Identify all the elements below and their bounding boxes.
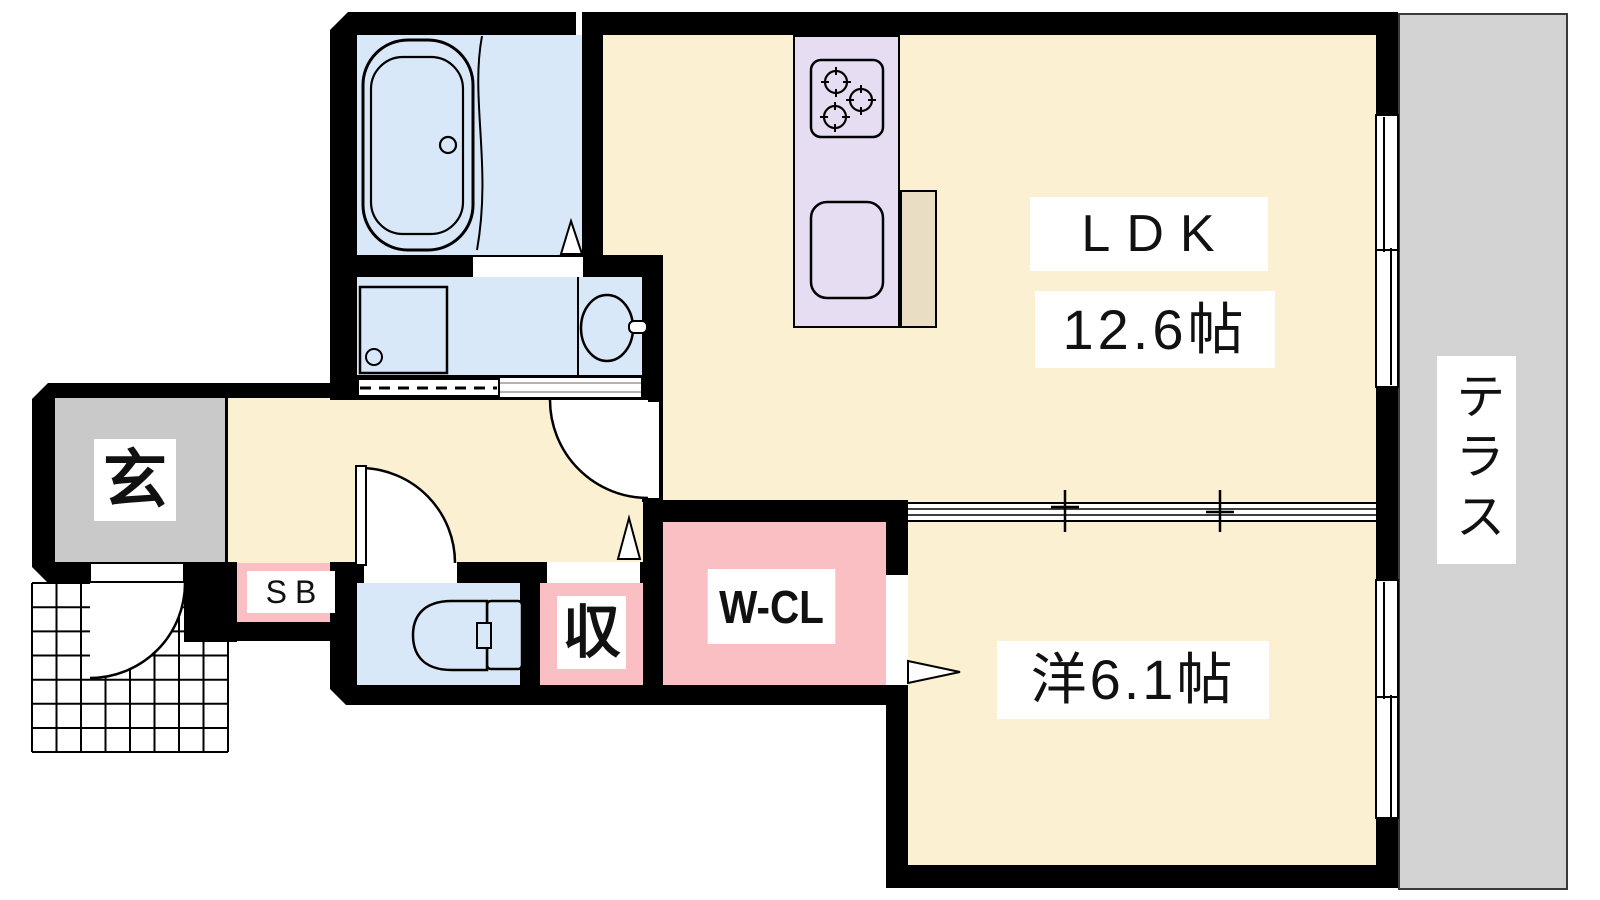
label-ldk: LDK bbox=[1030, 197, 1268, 271]
wall-western-left-lower bbox=[886, 685, 908, 867]
wall-right-upper bbox=[1376, 12, 1398, 117]
room-hallway bbox=[228, 398, 643, 563]
wall-wcl-top bbox=[643, 500, 908, 522]
label-storage: 収 bbox=[557, 596, 626, 669]
washroom-folding-door bbox=[359, 378, 498, 397]
washroom-sliding-door bbox=[498, 376, 643, 399]
wall-toilet-storage-divider bbox=[520, 583, 540, 685]
wall-under-shoebox bbox=[225, 622, 337, 641]
wall-bath-right bbox=[582, 12, 603, 257]
wall-top bbox=[330, 12, 1398, 35]
sliding-partition bbox=[908, 502, 1376, 522]
ldk-door-leaf bbox=[644, 400, 661, 500]
entrance-step-line bbox=[225, 398, 228, 563]
label-walk-in-closet: W-CL bbox=[708, 569, 836, 644]
storage-door-opening bbox=[547, 562, 640, 583]
floor-plan: LDK 12.6帖 洋6.1帖 テラス 玄 SB 収 W-CL bbox=[0, 0, 1600, 900]
wall-hall-bottom-a bbox=[357, 562, 364, 583]
label-western-room: 洋6.1帖 bbox=[997, 641, 1269, 719]
wall-entrance-left bbox=[32, 383, 55, 563]
label-entrance: 玄 bbox=[94, 439, 176, 521]
kitchen-counter bbox=[793, 35, 900, 328]
room-toilet bbox=[357, 583, 520, 685]
wall-entrance-top bbox=[32, 383, 357, 398]
wall-left-main bbox=[330, 12, 357, 400]
toilet-door-opening bbox=[364, 562, 457, 583]
wcl-door-opening bbox=[886, 575, 908, 685]
wall-western-left-upper bbox=[886, 500, 908, 577]
kitchen-side-counter bbox=[900, 190, 937, 328]
room-bathroom bbox=[357, 35, 582, 257]
label-shoe-box: SB bbox=[247, 571, 335, 613]
entry-door-leaf bbox=[89, 562, 185, 583]
room-washroom bbox=[357, 277, 642, 375]
wall-bottom-long bbox=[330, 685, 907, 705]
bathroom-door-opening bbox=[473, 257, 583, 277]
label-terrace: テラス bbox=[1437, 356, 1516, 564]
wall-hall-bottom-b bbox=[457, 562, 547, 583]
wall-storage-right bbox=[643, 522, 663, 685]
entry-door-swing-icon bbox=[90, 583, 185, 678]
wall-right-mid bbox=[1376, 385, 1398, 582]
wall-western-bottom bbox=[886, 865, 1390, 888]
label-ldk-size: 12.6帖 bbox=[1035, 291, 1275, 368]
